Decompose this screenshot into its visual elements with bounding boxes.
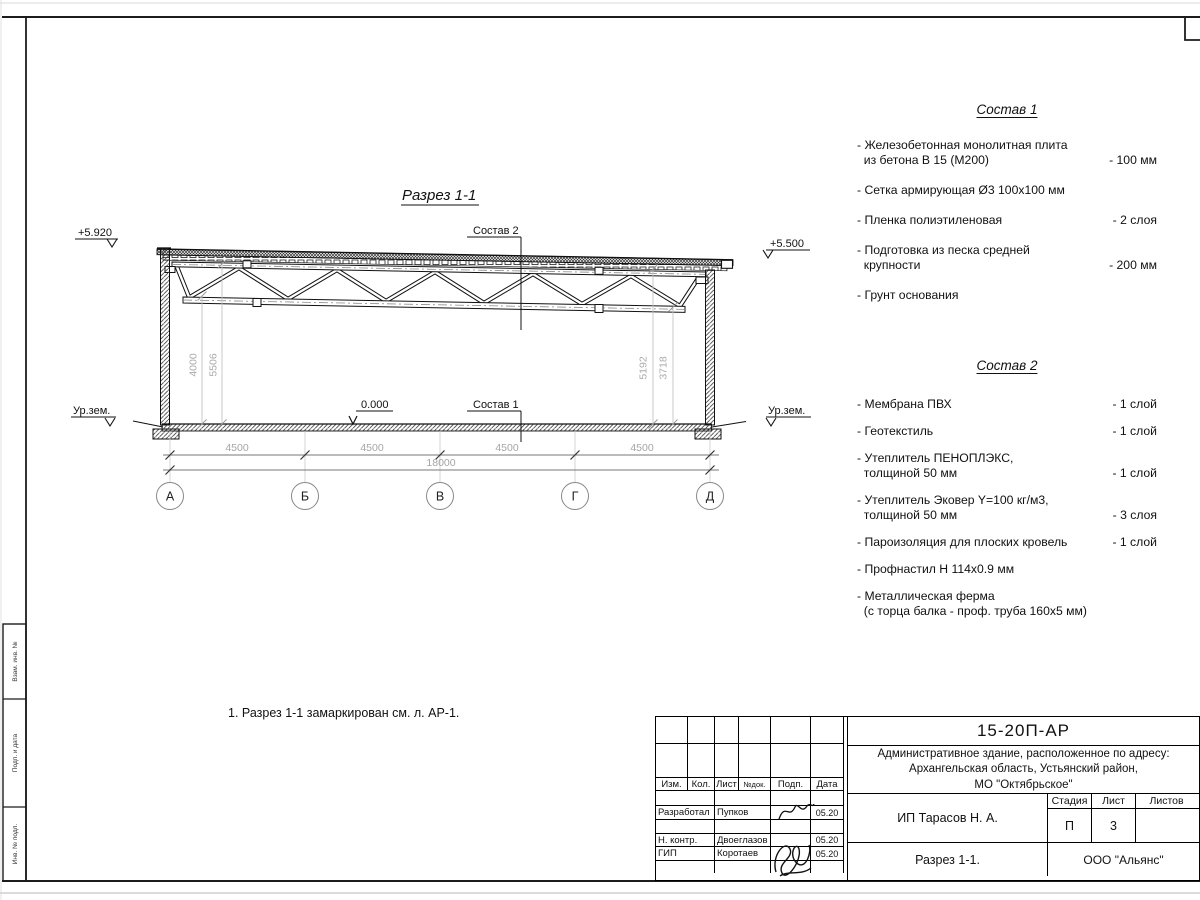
composition-item-value: - 2 слоя [1105,213,1157,228]
gusset-plate [243,261,251,268]
vertical-dimensions: 4000 5506 5192 3718 [188,260,678,429]
composition-item-name: - Геотекстиль [857,424,933,439]
composition-item-value: - 1 слой [1104,535,1157,550]
title-block-left: Изм. Кол. Лист №док. Подп. Дата Разработ… [655,716,847,881]
leader-sostav2: Состав 2 [473,225,519,237]
tb-client: ИП Тарасов Н. А. [848,794,1048,842]
elevation-zero: 0.000 [361,399,389,411]
tb-sign-ncontrol [771,834,811,847]
floor-slab [162,424,712,431]
tb-sheet-label: Лист [1092,794,1136,808]
composition-item: - Подготовка из песка средней крупности-… [857,243,1157,273]
ground-level-right: Ур.зем. [768,405,805,417]
wall-left [161,248,170,425]
composition-list-2: Состав 2 - Мембрана ПВХ- 1 слой- Геотекс… [857,358,1157,631]
dim-height-5192: 5192 [638,356,650,380]
composition-1-items: - Железобетонная монолитная плита из бет… [857,138,1157,303]
foundation-left [153,429,179,439]
dim-bay-4: 4500 [630,442,654,454]
dim-height-5506: 5506 [208,353,220,377]
tb-sign-gip [771,847,811,861]
drawing-note: 1. Разрез 1-1 замаркирован см. л. АР-1. [228,706,459,720]
gusset-plate [595,267,603,274]
tb-sheet-title: Разрез 1-1. [848,843,1048,876]
tb-stage-label: Стадия [1048,794,1092,808]
tb-name-ncontrol: Двоеглазов [715,834,771,847]
composition-item-name: - Пленка полиэтиленовая [857,213,1002,228]
tb-company: ООО "Альянс" [1048,843,1199,876]
composition-2-items: - Мембрана ПВХ- 1 слой- Геотекстиль- 1 с… [857,397,1157,619]
tb-col-podp: Подп. [771,778,811,791]
frame-corner-cell [1185,17,1200,40]
margin-stamp: Взам. инв. № Подп. и дата Инв. № подл. [3,624,26,881]
axis-bubbles: А Б В Г Д [157,483,724,510]
tb-col-izm: Изм. [656,778,688,791]
margin-label-podp: Подп. и дата [12,733,19,772]
composition-item-name: - Профнастил Н 114х0.9 мм [857,562,1014,577]
dim-bay-3: 4500 [495,442,519,454]
elevation-left: +5.920 [78,227,112,239]
tb-role-ncontrol: Н. контр. [656,834,715,847]
dim-height-4000: 4000 [188,353,200,377]
tb-sheets-label: Листов [1136,794,1197,808]
composition-item-name: - Металлическая ферма (с торца балка - п… [857,589,1087,619]
composition-item: - Геотекстиль- 1 слой [857,424,1157,439]
tb-col-kol: Кол. [688,778,715,791]
margin-label-inv: Инв. № подл. [12,824,19,865]
dim-height-3718: 3718 [658,356,670,380]
section-title: Разрез 1-1 [401,187,479,205]
axis-a: А [166,490,175,504]
horizontal-dimensions: 4500 4500 4500 4500 18000 [163,431,719,482]
dim-bay-2: 4500 [360,442,384,454]
tb-name-developer: Пупков [715,806,771,820]
tb-sign-developer [771,806,811,820]
tb-date-developer: 05.20 [811,806,844,820]
composition-item-name: - Мембрана ПВХ [857,397,952,412]
building-section [133,248,746,439]
composition-item-name: - Железобетонная монолитная плита из бет… [857,138,1068,168]
composition-item-value: - 1 слой [1104,466,1157,481]
tb-date-ncontrol: 05.20 [811,834,844,847]
tb-col-data: Дата [811,778,844,791]
tb-col-list: Лист [715,778,739,791]
tb-date-gip: 05.20 [811,847,844,861]
composition-list-1: Состав 1 - Железобетонная монолитная пли… [857,102,1157,318]
composition-item-name: - Сетка армирующая Ø3 100х100 мм [857,183,1065,198]
gusset-plate [253,299,261,307]
section-title-text: Разрез 1-1 [402,187,476,204]
composition-item: - Металлическая ферма (с торца балка - п… [857,589,1157,619]
composition-1-title: Состав 1 [857,102,1157,117]
composition-item: - Пароизоляция для плоских кровель- 1 сл… [857,535,1157,550]
composition-item: - Сетка армирующая Ø3 100х100 мм [857,183,1157,198]
tb-sheets-value [1136,809,1197,842]
tb-project-name: Административное здание, расположенное п… [848,746,1199,794]
composition-item-name: - Утеплитель Эковер Y=100 кг/м3, толщино… [857,493,1049,523]
composition-item-value: - 1 слой [1104,397,1157,412]
composition-item-value: - 200 мм [1101,258,1157,273]
axis-d: Д [706,490,715,504]
tb-name-gip: Коротаев [715,847,771,861]
foundation-right [695,429,721,439]
composition-item: - Профнастил Н 114х0.9 мм [857,562,1157,577]
axis-v: В [436,490,444,504]
composition-item: - Утеплитель Эковер Y=100 кг/м3, толщино… [857,493,1157,523]
gusset-plate [595,305,603,313]
composition-item-name: - Грунт основания [857,288,958,303]
wall-right [706,270,715,425]
composition-item-name: - Пароизоляция для плоских кровель [857,535,1067,550]
composition-item: - Мембрана ПВХ- 1 слой [857,397,1157,412]
composition-item: - Железобетонная монолитная плита из бет… [857,138,1157,168]
tb-stage-block: Стадия Лист Листов П 3 [1048,794,1199,842]
tb-role-gip: ГИП [656,847,715,861]
dim-bay-1: 4500 [225,442,249,454]
tb-sheet-value: 3 [1092,809,1136,842]
composition-2-title: Состав 2 [857,358,1157,373]
drawing-sheet: Взам. инв. № Подп. и дата Инв. № подл. Р… [0,0,1200,900]
axis-g: Г [572,490,579,504]
composition-item: - Утеплитель ПЕНОПЛЭКС, толщиной 50 мм- … [857,451,1157,481]
roof-edge-cap [722,260,733,268]
margin-label-vzam: Взам. инв. № [12,641,19,681]
dim-total: 18000 [426,457,455,469]
tb-col-ndok: №док. [739,778,771,791]
composition-item-value: - 3 слоя [1105,508,1157,523]
tb-role-developer: Разработал [656,806,715,820]
composition-item-value: - 100 мм [1101,153,1157,168]
axis-b: Б [301,490,309,504]
composition-item: - Грунт основания [857,288,1157,303]
tb-stage-value: П [1048,809,1092,842]
leader-sostav1: Состав 1 [473,399,519,411]
composition-item-name: - Утеплитель ПЕНОПЛЭКС, толщиной 50 мм [857,451,1013,481]
elevation-right: +5.500 [770,238,804,250]
composition-item-value: - 1 слой [1104,424,1157,439]
title-block-right: 15-20П-АР Административное здание, распо… [847,716,1200,881]
composition-item-name: - Подготовка из песка средней крупности [857,243,1030,273]
composition-item: - Пленка полиэтиленовая- 2 слоя [857,213,1157,228]
tb-doc-number: 15-20П-АР [848,717,1199,746]
ground-level-left: Ур.зем. [73,405,110,417]
